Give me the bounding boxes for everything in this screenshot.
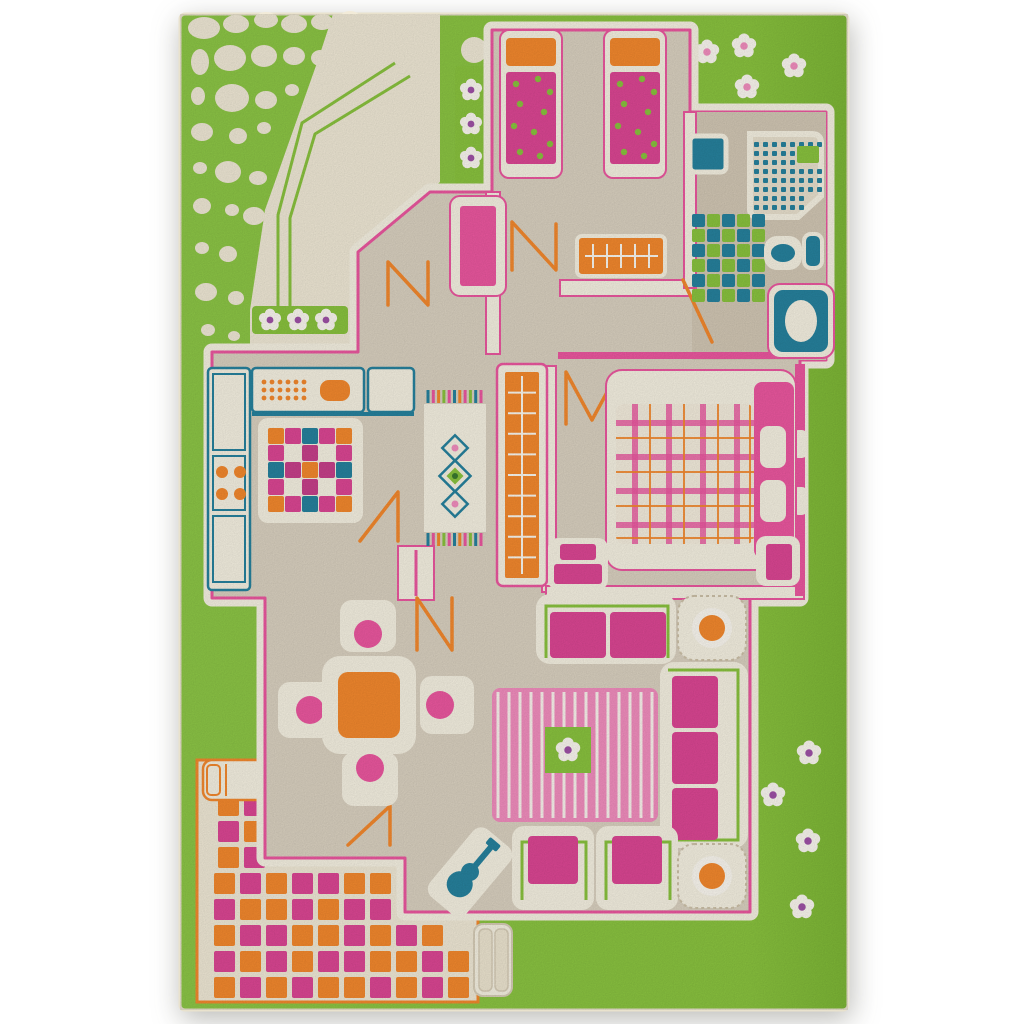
rug xyxy=(180,11,848,1010)
rug-pile-texture xyxy=(180,14,848,1010)
play-rug-scene xyxy=(0,0,1024,1024)
photo-of-play-rug xyxy=(0,0,1024,1024)
